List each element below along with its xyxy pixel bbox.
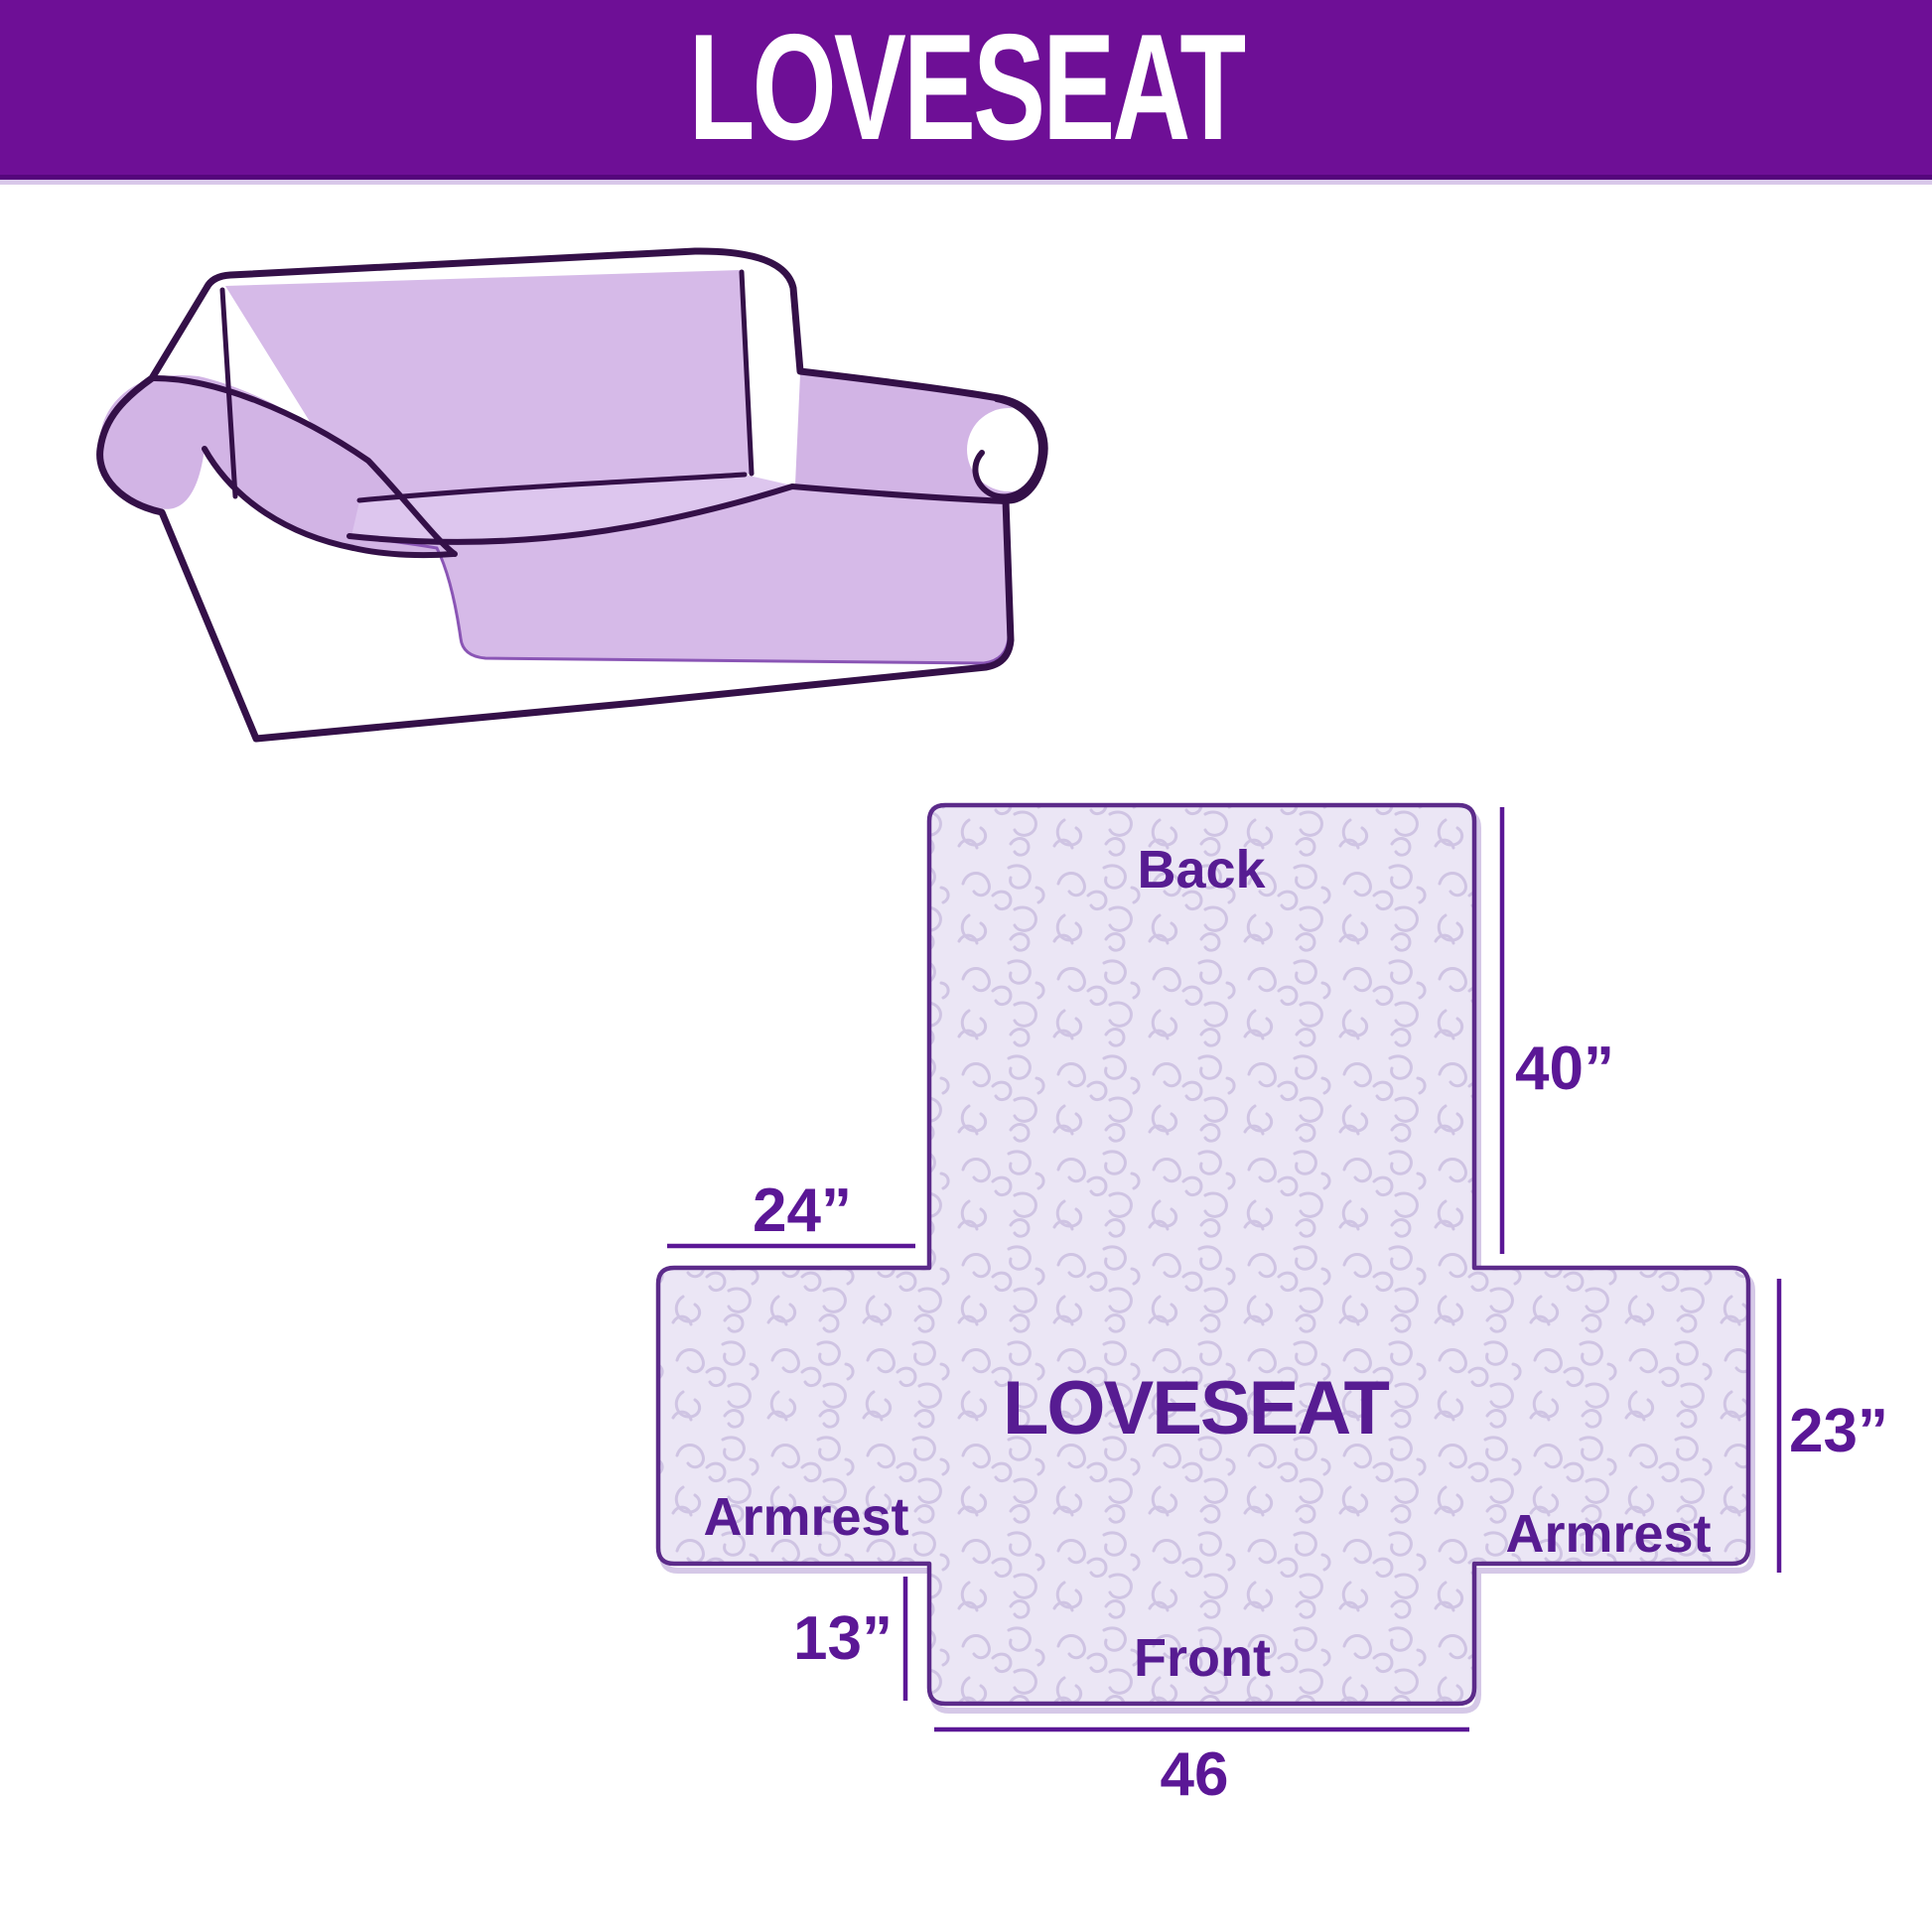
dimension-armrest-width: 24” <box>753 1180 852 1242</box>
cover-template-diagram <box>658 805 1779 1729</box>
template-armrest-right-label: Armrest <box>1505 1507 1711 1561</box>
dimension-armrest-height: 23” <box>1789 1401 1888 1462</box>
template-armrest-left-label: Armrest <box>703 1490 908 1544</box>
template-center-label: LOVESEAT <box>1003 1371 1388 1447</box>
template-back-label: Back <box>1137 843 1265 897</box>
scene-graphic <box>0 0 1932 1932</box>
dimension-back-height: 40” <box>1515 1038 1614 1100</box>
dimension-front-flap-height: 13” <box>793 1608 893 1670</box>
sofa-illustration <box>99 251 1050 739</box>
template-front-label: Front <box>1134 1631 1271 1685</box>
infographic-page: LOVESEAT <box>0 0 1932 1932</box>
dimension-seat-width: 46 <box>1161 1744 1229 1806</box>
